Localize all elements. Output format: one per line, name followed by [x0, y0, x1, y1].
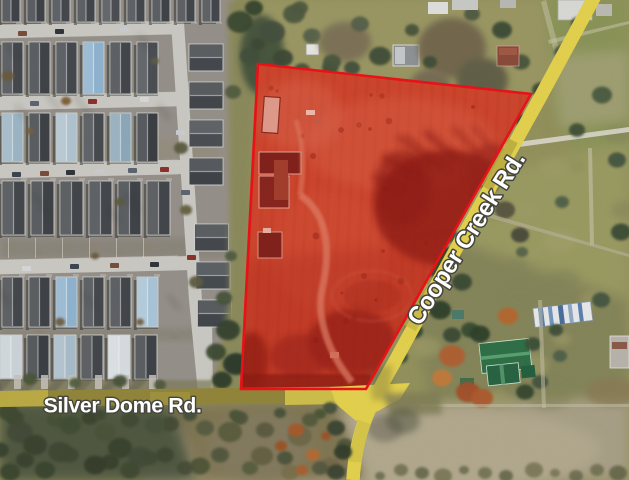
svg-text:Silver Dome Rd.: Silver Dome Rd.	[43, 394, 201, 418]
